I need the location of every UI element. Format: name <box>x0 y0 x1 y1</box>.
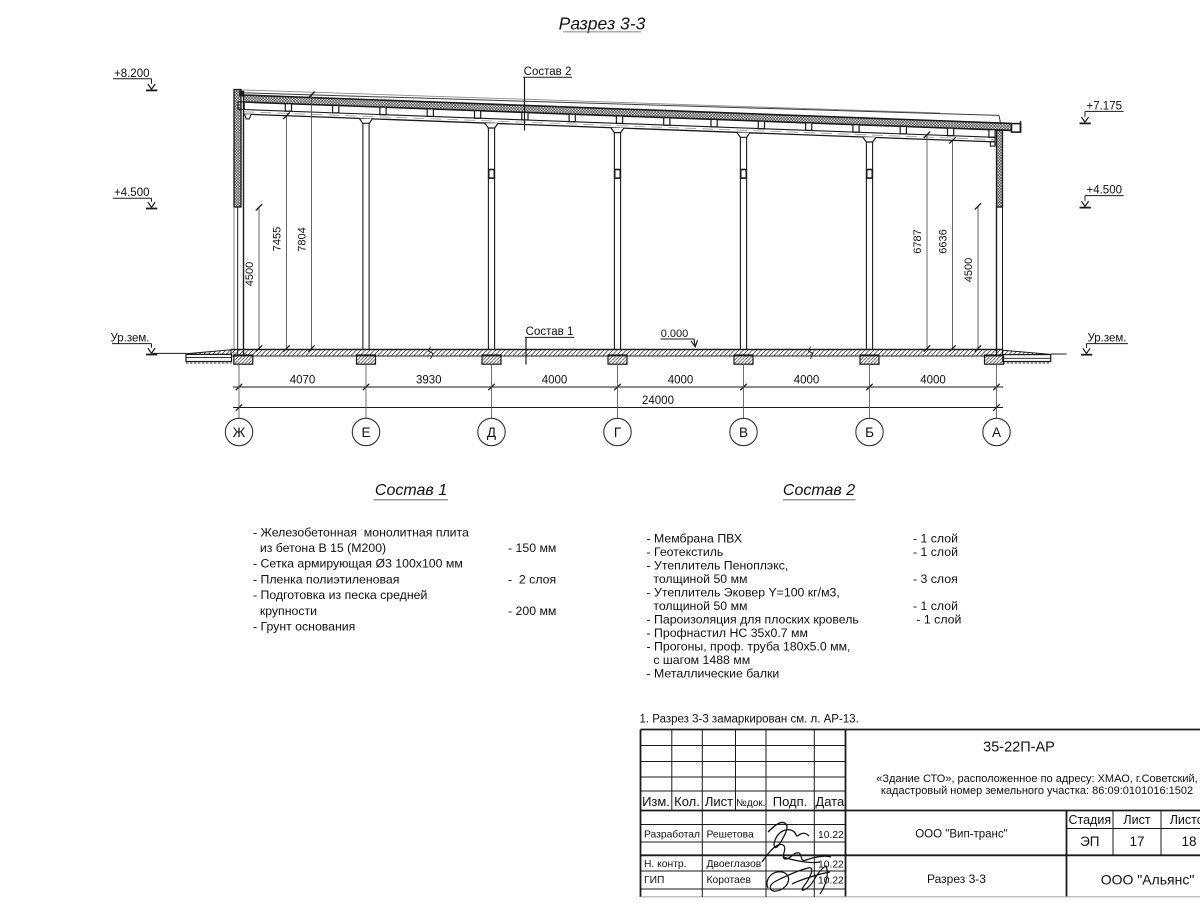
svg-text:Ур.зем.: Ур.зем. <box>1087 333 1126 345</box>
svg-text:№док.: №док. <box>736 798 765 809</box>
svg-text:«Здание СТО», расположенное по: «Здание СТО», расположенное по адресу: Х… <box>876 773 1197 785</box>
svg-text:1. Разрез 3-3 замаркирован см.: 1. Разрез 3-3 замаркирован см. л. АР-13. <box>640 714 859 726</box>
svg-text:- 200 мм: - 200 мм <box>508 604 556 618</box>
svg-text:ООО "Альянс": ООО "Альянс" <box>1101 872 1195 888</box>
svg-text:- Подготовка из песка средней: - Подготовка из песка средней <box>253 588 427 602</box>
svg-text:Г: Г <box>614 425 622 440</box>
svg-text:ГИП: ГИП <box>644 875 664 886</box>
svg-text:24000: 24000 <box>642 395 674 407</box>
svg-text:Решетова: Решетова <box>707 829 754 840</box>
svg-text:Лист: Лист <box>705 794 733 809</box>
svg-text:- Металлические балки: - Металлические балки <box>647 666 780 680</box>
svg-text:- Прогоны, проф. труба 180х5.0: - Прогоны, проф. труба 180х5.0 мм, <box>647 639 851 653</box>
svg-text:ООО "Вип-транс": ООО "Вип-транс" <box>915 829 1008 841</box>
svg-text:Коротаев: Коротаев <box>707 875 752 886</box>
svg-text:+4.500: +4.500 <box>114 187 150 199</box>
svg-text:- Пароизоляция для плоских кро: - Пароизоляция для плоских кровель <box>647 612 859 626</box>
svg-text:Состав 1: Состав 1 <box>526 326 574 338</box>
svg-text:+8.200: +8.200 <box>114 68 150 80</box>
svg-text:17: 17 <box>1129 834 1144 849</box>
svg-text:- Железобетонная монолитная п: - Железобетонная монолитная плита <box>253 525 469 539</box>
svg-text:- 1 слой: - 1 слой <box>913 612 961 626</box>
svg-text:4500: 4500 <box>963 258 975 282</box>
svg-text:6787: 6787 <box>912 229 924 253</box>
svg-text:Разрез 3-3: Разрез 3-3 <box>927 872 986 886</box>
svg-text:3930: 3930 <box>416 374 442 386</box>
svg-text:- 2 слоя: - 2 слоя <box>508 572 556 586</box>
svg-text:- Мембрана ПВХ: - Мембрана ПВХ <box>647 531 743 545</box>
svg-text:4000: 4000 <box>794 374 820 386</box>
svg-text:- 1 слой: - 1 слой <box>913 599 958 613</box>
svg-text:10.22: 10.22 <box>818 830 844 841</box>
svg-text:+7.175: +7.175 <box>1087 100 1123 112</box>
svg-text:Дата: Дата <box>815 794 845 809</box>
svg-text:с шагом 1488 мм: с шагом 1488 мм <box>647 653 751 667</box>
svg-text:Е: Е <box>361 425 370 440</box>
svg-text:из бетона В 15 (М200): из бетона В 15 (М200) <box>253 541 386 555</box>
svg-text:7455: 7455 <box>271 227 283 251</box>
svg-text:Подп.: Подп. <box>773 794 808 809</box>
svg-text:4500: 4500 <box>244 262 256 286</box>
svg-text:В: В <box>739 425 748 440</box>
svg-text:+4.500: +4.500 <box>1087 185 1123 197</box>
svg-text:- 1 слой: - 1 слой <box>913 545 958 559</box>
svg-text:- 150 мм: - 150 мм <box>508 541 556 555</box>
svg-text:Ж: Ж <box>233 425 246 440</box>
svg-text:А: А <box>992 425 1001 440</box>
svg-text:4070: 4070 <box>290 374 316 386</box>
svg-text:Лист: Лист <box>1123 813 1150 827</box>
svg-text:Листов: Листов <box>1170 813 1200 827</box>
svg-text:Изм.: Изм. <box>642 794 670 809</box>
svg-text:35-22П-АР: 35-22П-АР <box>983 739 1055 755</box>
svg-text:Д: Д <box>487 425 496 440</box>
svg-text:крупности: крупности <box>253 604 317 618</box>
svg-text:Состав 1: Состав 1 <box>375 482 447 499</box>
svg-text:Ур.зем.: Ур.зем. <box>110 333 149 345</box>
svg-text:толщиной 50 мм: толщиной 50 мм <box>647 599 748 613</box>
svg-text:Н. контр.: Н. контр. <box>644 859 687 870</box>
svg-text:6636: 6636 <box>937 229 949 253</box>
svg-text:- Геотекстиль: - Геотекстиль <box>647 545 724 559</box>
svg-text:- Утеплитель Пеноплэкс,: - Утеплитель Пеноплэкс, <box>647 558 789 572</box>
svg-text:- Грунт основания: - Грунт основания <box>253 620 355 634</box>
svg-text:Кол.: Кол. <box>674 794 700 809</box>
svg-text:Разработал: Разработал <box>644 828 700 840</box>
svg-text:Стадия: Стадия <box>1068 813 1111 827</box>
svg-text:Разрез 3-3: Разрез 3-3 <box>559 14 646 34</box>
svg-text:Состав 2: Состав 2 <box>783 482 855 499</box>
svg-text:- Утеплитель Эковер Y=100 кг/м: - Утеплитель Эковер Y=100 кг/м3, <box>647 585 840 599</box>
svg-text:толщиной 50 мм: толщиной 50 мм <box>647 572 748 586</box>
svg-text:Двоеглазов: Двоеглазов <box>707 859 762 870</box>
svg-text:- Пленка полиэтиленовая: - Пленка полиэтиленовая <box>253 572 399 586</box>
svg-text:- Профнастил НС 35х0.7 мм: - Профнастил НС 35х0.7 мм <box>647 626 808 640</box>
svg-text:- 3 слоя: - 3 слоя <box>913 572 958 586</box>
svg-text:0.000: 0.000 <box>661 328 689 340</box>
svg-text:4000: 4000 <box>668 374 694 386</box>
svg-text:4000: 4000 <box>542 374 568 386</box>
svg-text:кадастровый номер земельного у: кадастровый номер земельного участка: 86… <box>881 785 1193 797</box>
svg-text:4000: 4000 <box>920 374 946 386</box>
svg-text:Б: Б <box>865 425 874 440</box>
svg-text:- 1 слой: - 1 слой <box>913 531 958 545</box>
svg-text:Состав 2: Состав 2 <box>524 66 572 78</box>
svg-text:18: 18 <box>1181 834 1196 849</box>
svg-text:ЭП: ЭП <box>1080 834 1099 849</box>
svg-text:- Сетка армирующая Ø3 100х100: - Сетка армирующая Ø3 100х100 мм <box>253 557 463 571</box>
svg-text:10.22: 10.22 <box>818 876 844 887</box>
svg-text:7804: 7804 <box>296 227 308 251</box>
